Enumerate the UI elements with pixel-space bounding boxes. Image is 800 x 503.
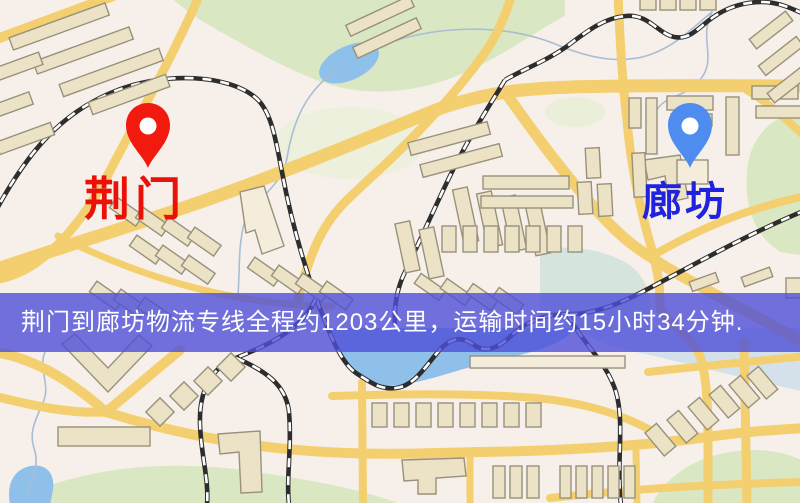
route-info-text: 荆门到廊坊物流专线全程约1203公里，运输时间约15小时34分钟. — [0, 293, 800, 352]
origin-city-label: 荆门 — [84, 176, 186, 222]
destination-city-label: 廊坊 — [642, 182, 728, 222]
map-canvas[interactable] — [0, 0, 800, 503]
route-info-banner: 荆门到廊坊物流专线全程约1203公里，运输时间约15小时34分钟. — [0, 293, 800, 352]
map-view: 荆门 廊坊 荆门到廊坊物流专线全程约1203公里，运输时间约15小时34分钟. — [0, 0, 800, 503]
